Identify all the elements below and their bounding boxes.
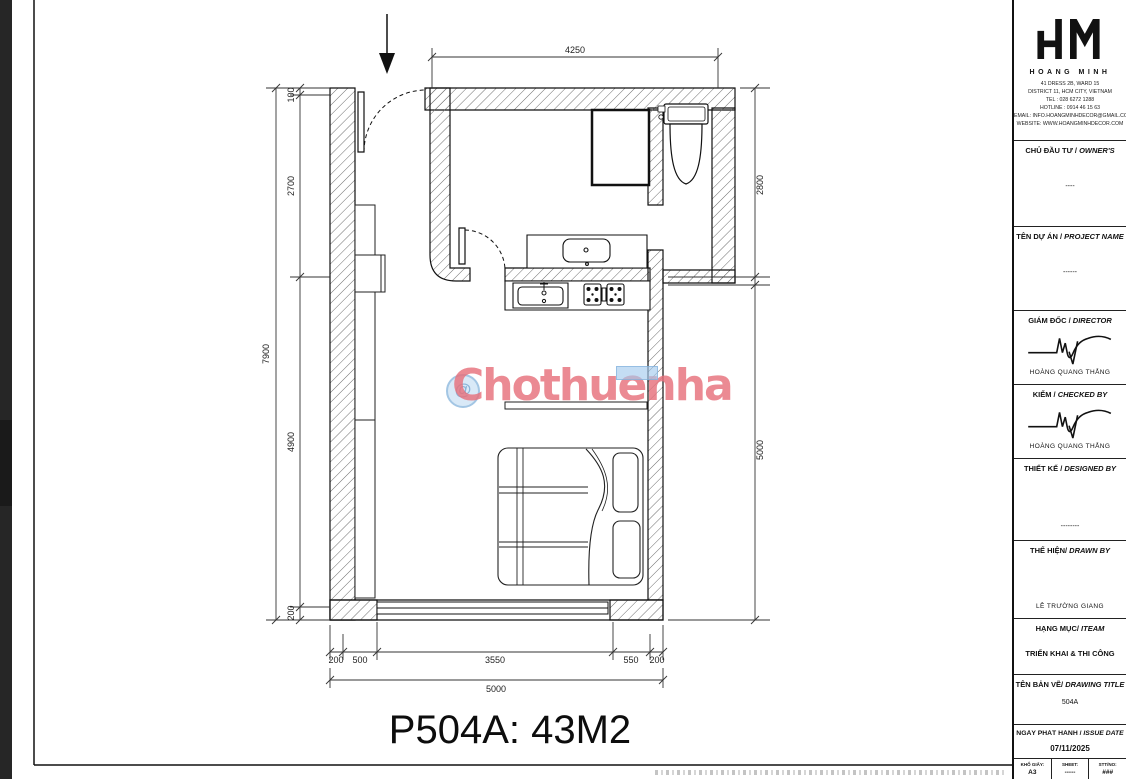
bathroom-door (459, 228, 505, 269)
issue-date-value: 07/11/2025 (1014, 744, 1126, 753)
project-value: ------ (1014, 269, 1126, 276)
hm-logo-icon (1033, 16, 1107, 62)
signature-scribble (1024, 327, 1116, 365)
svg-text:4900: 4900 (286, 432, 296, 452)
item-section: HẠNG MỤC/ ITEAM TRIỂN KHAI & THI CÔNG (1014, 618, 1126, 674)
wall-left (330, 88, 355, 620)
svg-text:5000: 5000 (755, 440, 765, 460)
director-section: GIÁM ĐỐC / DIRECTOR HOÀNG QUANG THẮNG (1014, 310, 1126, 384)
cutoff-text-strip (655, 770, 1007, 775)
checked-name: HOÀNG QUANG THẮNG (1014, 443, 1126, 450)
number-cell: STT/NO: ### (1089, 759, 1126, 779)
paper-size-cell: KHỔ GIẤY: A3 (1014, 759, 1052, 779)
svg-text:500: 500 (352, 655, 367, 665)
pillow (613, 521, 640, 578)
wall-kitchen (505, 268, 650, 281)
svg-text:200: 200 (286, 605, 296, 620)
svg-text:3550: 3550 (485, 655, 505, 665)
shelf (505, 402, 647, 409)
director-name: HOÀNG QUANG THẮNG (1014, 369, 1126, 376)
dim-top: 4250 (565, 45, 585, 55)
kitchen-counter (505, 281, 650, 310)
drawing-title-value: 504A (1014, 699, 1126, 706)
company-address: 41 DRESS 2B, WARD 15 DISTRICT 11, HCM CI… (1014, 80, 1126, 128)
drawing-sheet: 4250 7900 100 2700 4900 200 2800 5000 20… (0, 0, 1126, 779)
svg-text:100: 100 (286, 87, 296, 102)
designed-section: THIẾT KẾ / DESIGNED BY -------- (1014, 458, 1126, 540)
item-value: TRIỂN KHAI & THI CÔNG (1014, 649, 1126, 658)
drawn-section: THỂ HIỆN/ DRAWN BY LÊ TRƯỜNG GIANG (1014, 540, 1126, 618)
svg-text:2800: 2800 (755, 175, 765, 195)
sheet-frame (34, 0, 1012, 765)
wall-bath-bottom (663, 270, 735, 283)
designed-value: -------- (1014, 523, 1126, 530)
sheet-info-row: KHỔ GIẤY: A3 SHEET: ----- STT/NO: ### (1014, 758, 1126, 779)
svg-text:550: 550 (623, 655, 638, 665)
floor-plan-svg: 4250 7900 100 2700 4900 200 2800 5000 20… (0, 0, 1012, 779)
drawn-name: LÊ TRƯỜNG GIANG (1014, 603, 1126, 610)
toilet (658, 104, 708, 184)
shower (592, 110, 649, 185)
plan-caption: P504A: 43M2 (340, 708, 680, 753)
company-name: HOANG MINH (1014, 69, 1126, 76)
owner-value: ---- (1014, 183, 1126, 190)
issue-date-section: NGÀY PHÁT HÀNH / ISSUE DATE 07/11/2025 (1014, 724, 1126, 758)
checked-section: KIỂM / CHECKED BY HOÀNG QUANG THẮNG (1014, 384, 1126, 458)
signature-scribble (1024, 401, 1116, 439)
pillow (613, 453, 638, 512)
entry-door (358, 90, 426, 152)
title-block: HOANG MINH 41 DRESS 2B, WARD 15 DISTRICT… (1012, 0, 1126, 779)
dim-left-total: 7900 (261, 344, 271, 364)
drawing-title-section: TÊN BẢN VẼ/ DRAWING TITLE 504A (1014, 674, 1126, 724)
entry-arrow-icon (379, 14, 395, 74)
bed (498, 448, 643, 585)
svg-text:200: 200 (649, 655, 664, 665)
owner-section: CHỦ ĐẦU TƯ / OWNER'S ---- (1014, 140, 1126, 226)
company-header: HOANG MINH 41 DRESS 2B, WARD 15 DISTRICT… (1014, 0, 1126, 140)
wall-right-upper (712, 108, 735, 283)
svg-text:2700: 2700 (286, 176, 296, 196)
wardrobe-cabinets (355, 205, 385, 598)
sheet-cell: SHEET: ----- (1052, 759, 1090, 779)
wall-bottom (330, 600, 663, 620)
vanity-sink (527, 235, 647, 268)
svg-text:200: 200 (328, 655, 343, 665)
dim-bottom-total: 5000 (486, 684, 506, 694)
project-section: TÊN DỰ ÁN / PROJECT NAME ------ (1014, 226, 1126, 310)
